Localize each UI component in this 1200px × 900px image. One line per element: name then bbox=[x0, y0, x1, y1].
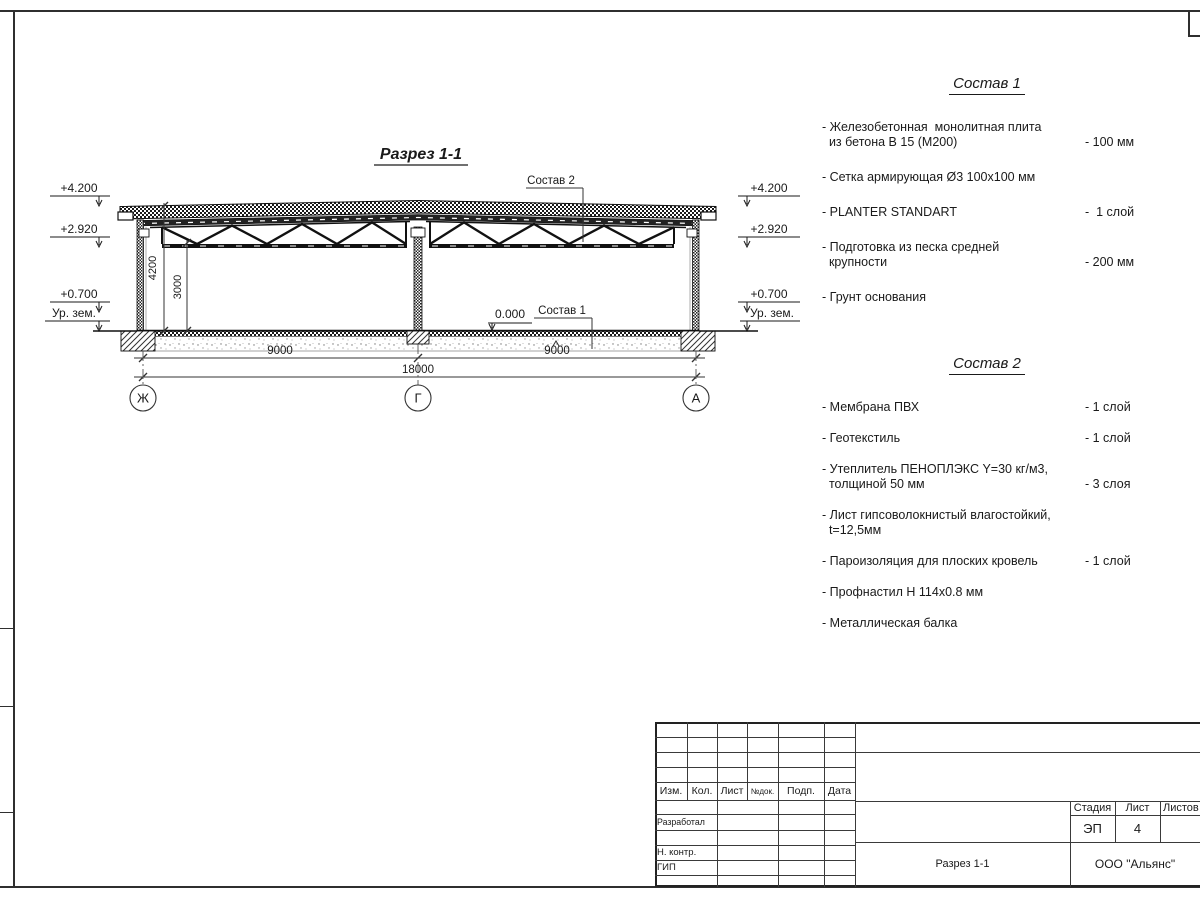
rev-header-ndoc: №док. bbox=[747, 782, 778, 800]
list-item: - Сетка армирующая Ø3 100х100 мм bbox=[822, 170, 1152, 185]
foundation-left bbox=[121, 331, 155, 351]
elev-left-ground: Ур. зем. bbox=[52, 306, 96, 320]
list-item: - Лист гипсоволокнистый влагостойкий, t=… bbox=[822, 508, 1152, 538]
role-gip: ГИП bbox=[657, 860, 717, 875]
list-item: - Геотекстиль - 1 слой bbox=[822, 431, 1152, 446]
axis-left-label: Ж bbox=[137, 391, 149, 406]
binding-tick-1 bbox=[0, 628, 13, 629]
dim-span-right-text: 9000 bbox=[544, 345, 570, 357]
ref-sostav1-label: Состав 1 bbox=[538, 305, 586, 317]
role-developed: Разработал bbox=[657, 814, 717, 830]
rev-header-data: Дата bbox=[824, 782, 855, 800]
axis-right-label: А bbox=[692, 391, 701, 406]
zero-level-mark bbox=[488, 323, 532, 330]
view-title: Разрез 1-1 bbox=[380, 146, 462, 163]
ref-sostav2-label: Состав 2 bbox=[527, 175, 575, 187]
rev-header-podp: Подп. bbox=[778, 782, 824, 800]
binding-tick-2 bbox=[0, 706, 13, 707]
sostav1-list: Состав 1 - Железобетонная монолитная пли… bbox=[822, 75, 1152, 325]
frame-left-line bbox=[13, 10, 15, 887]
roof-endcap-left bbox=[118, 212, 133, 220]
elev-right-truss: +2.920 bbox=[750, 222, 787, 236]
column-center bbox=[414, 227, 422, 331]
elev-right-ground: Ур. зем. bbox=[750, 306, 794, 320]
foundation-column bbox=[407, 331, 429, 344]
elev-left-truss: +2.920 bbox=[60, 222, 97, 236]
section-drawing: Разрез 1-1 bbox=[30, 140, 810, 430]
list-item: - Подготовка из песка средней крупности … bbox=[822, 240, 1152, 270]
stamp-sheets-label: Листов bbox=[1163, 801, 1200, 815]
dim-3000-text: 3000 bbox=[172, 275, 184, 299]
drawing-sheet: Разрез 1-1 bbox=[0, 0, 1200, 900]
dim-span-left-text: 9000 bbox=[267, 345, 293, 357]
column-cap bbox=[411, 228, 425, 237]
truss-left bbox=[150, 222, 410, 249]
list-item: - Профнастил Н 114х0.8 мм bbox=[822, 585, 1152, 600]
rev-header-list: Лист bbox=[717, 782, 747, 800]
list-item: - Мембрана ПВХ - 1 слой bbox=[822, 400, 1152, 415]
elev-right-top: +4.200 bbox=[750, 181, 787, 195]
stamp-sheet-label: Лист bbox=[1115, 801, 1160, 815]
role-ncontrol: Н. контр. bbox=[657, 845, 717, 860]
stamp-stage-label: Стадия bbox=[1070, 801, 1115, 815]
doc-name: Разрез 1-1 bbox=[855, 842, 1070, 885]
elev-left-plinth: +0.700 bbox=[60, 287, 97, 301]
sostav2-title: Состав 2 bbox=[822, 355, 1152, 372]
bearing-plate-right bbox=[687, 229, 697, 237]
rev-header-izm: Изм. bbox=[655, 782, 687, 800]
title-block: Изм. Кол. Лист №док. Подп. Дата Разработ… bbox=[655, 722, 1200, 887]
stamp-sheet-value: 4 bbox=[1115, 815, 1160, 842]
binding-tick-3 bbox=[0, 812, 13, 813]
list-item: - Металлическая балка bbox=[822, 616, 1152, 631]
roof-endcap-right bbox=[701, 212, 716, 220]
dim-4200-text: 4200 bbox=[147, 256, 159, 280]
stamp-sheets-value bbox=[1160, 815, 1200, 842]
elev-right-plinth: +0.700 bbox=[750, 287, 787, 301]
sostav1-title: Состав 1 bbox=[822, 75, 1152, 92]
list-item: - Пароизоляция для плоских кровель - 1 с… bbox=[822, 554, 1152, 569]
list-item: - Грунт основания bbox=[822, 290, 1152, 305]
stamp-stage-value: ЭП bbox=[1070, 815, 1115, 842]
list-item: - PLANTER STANDART - 1 слой bbox=[822, 205, 1152, 220]
list-item: - Утеплитель ПЕНОПЛЭКС Y=30 кг/м3, толщи… bbox=[822, 462, 1152, 492]
truss-right bbox=[426, 222, 686, 249]
rev-header-kol: Кол. bbox=[687, 782, 717, 800]
elev-left-top: +4.200 bbox=[60, 181, 97, 195]
company-name: ООО "Альянс" bbox=[1070, 842, 1200, 885]
zero-level-text: 0.000 bbox=[495, 307, 525, 321]
foundation-right bbox=[681, 331, 715, 351]
bearing-plate-left bbox=[139, 229, 149, 237]
frame-top-line bbox=[0, 10, 1200, 12]
axis-center-label: Г bbox=[414, 391, 421, 406]
list-item: - Железобетонная монолитная плита из бет… bbox=[822, 120, 1152, 150]
dim-3000 bbox=[183, 239, 191, 335]
sostav2-list: Состав 2 - Мембрана ПВХ - 1 слой - Геоте… bbox=[822, 355, 1152, 647]
frame-corner-box bbox=[1188, 10, 1200, 37]
